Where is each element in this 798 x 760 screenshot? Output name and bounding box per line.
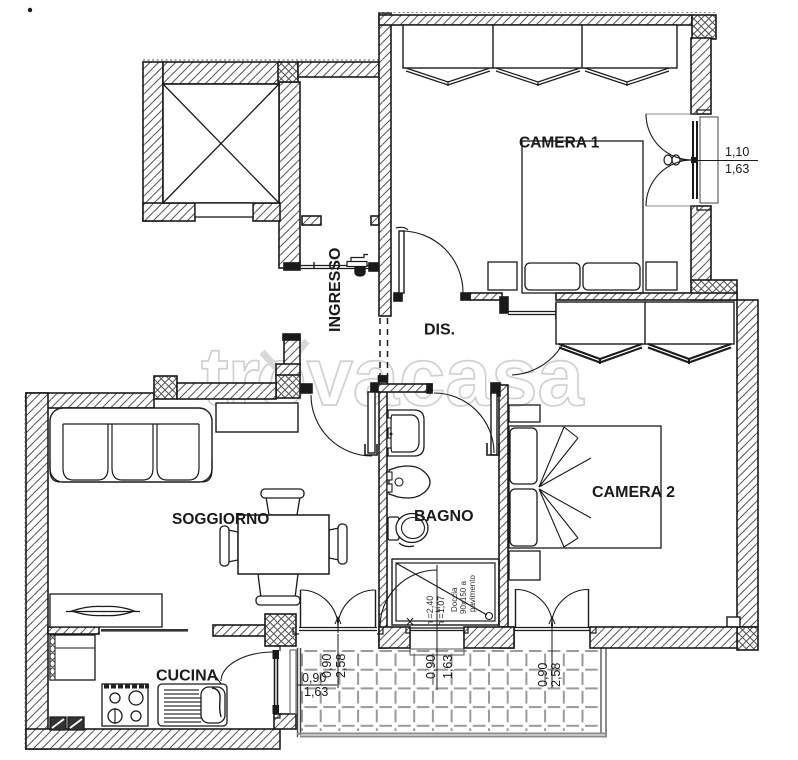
svg-text:0,90: 0,90: [424, 655, 438, 679]
svg-text:INGRESSO: INGRESSO: [327, 248, 344, 332]
svg-text:Doccia: Doccia: [450, 587, 459, 612]
svg-text:CAMERA 1: CAMERA 1: [519, 135, 600, 152]
svg-text:0,90: 0,90: [320, 654, 334, 678]
svg-text:2,58: 2,58: [334, 654, 348, 678]
svg-text:bi: bi: [435, 607, 442, 612]
svg-text:BAGNO: BAGNO: [414, 508, 474, 525]
svg-text:1,63: 1,63: [441, 655, 455, 679]
svg-text:1,63: 1,63: [725, 162, 749, 176]
svg-text:h =2,40: h =2,40: [425, 596, 435, 626]
svg-text:1,10: 1,10: [725, 145, 749, 159]
svg-text:CUCINA: CUCINA: [156, 668, 219, 685]
svg-text:pavimento: pavimento: [468, 575, 477, 612]
svg-text:90x150 a: 90x150 a: [459, 581, 468, 614]
svg-text:2,58: 2,58: [549, 663, 563, 687]
svg-text:0,90: 0,90: [536, 663, 550, 687]
svg-text:DIS.: DIS.: [424, 322, 455, 339]
svg-text:CAMERA 2: CAMERA 2: [592, 484, 675, 501]
svg-text:1,63: 1,63: [304, 685, 328, 699]
svg-text:SOGGIORNO: SOGGIORNO: [172, 511, 269, 528]
